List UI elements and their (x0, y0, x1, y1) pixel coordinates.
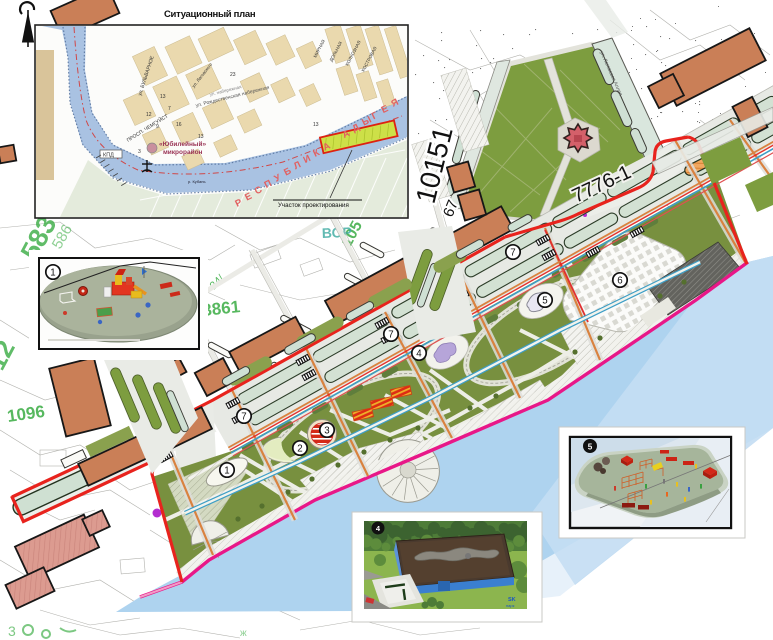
svg-text:КПД: КПД (103, 153, 114, 159)
svg-text:парк: парк (506, 603, 515, 608)
svg-text:13: 13 (198, 134, 204, 140)
svg-text:12: 12 (146, 112, 152, 118)
svg-text:3: 3 (324, 426, 329, 437)
svg-text:Участок проектирования: Участок проектирования (278, 202, 349, 209)
svg-text:Ситуационный план: Ситуационный план (164, 9, 256, 20)
svg-text:5: 5 (542, 296, 547, 307)
svg-text:2: 2 (297, 444, 302, 455)
svg-text:13: 13 (313, 122, 319, 128)
svg-text:3: 3 (8, 623, 16, 639)
svg-text:7: 7 (241, 412, 246, 423)
svg-text:ж: ж (240, 628, 247, 639)
svg-text:13: 13 (160, 94, 166, 100)
svg-text:6: 6 (617, 276, 622, 287)
svg-text:7: 7 (168, 106, 171, 112)
svg-text:«Юбилейный»: «Юбилейный» (159, 140, 206, 148)
svg-text:9: 9 (156, 124, 159, 130)
svg-text:7: 7 (388, 330, 393, 341)
svg-text:23: 23 (230, 72, 236, 78)
svg-text:5: 5 (588, 442, 593, 451)
svg-text:4: 4 (416, 349, 422, 360)
svg-text:16: 16 (176, 122, 182, 128)
svg-text:р. Кубань: р. Кубань (188, 179, 206, 184)
svg-text:1: 1 (50, 268, 55, 279)
svg-text:микрорайон: микрорайон (163, 148, 203, 156)
svg-text:7: 7 (510, 248, 515, 259)
svg-text:1: 1 (224, 466, 229, 477)
svg-text:3: 3 (138, 149, 141, 155)
